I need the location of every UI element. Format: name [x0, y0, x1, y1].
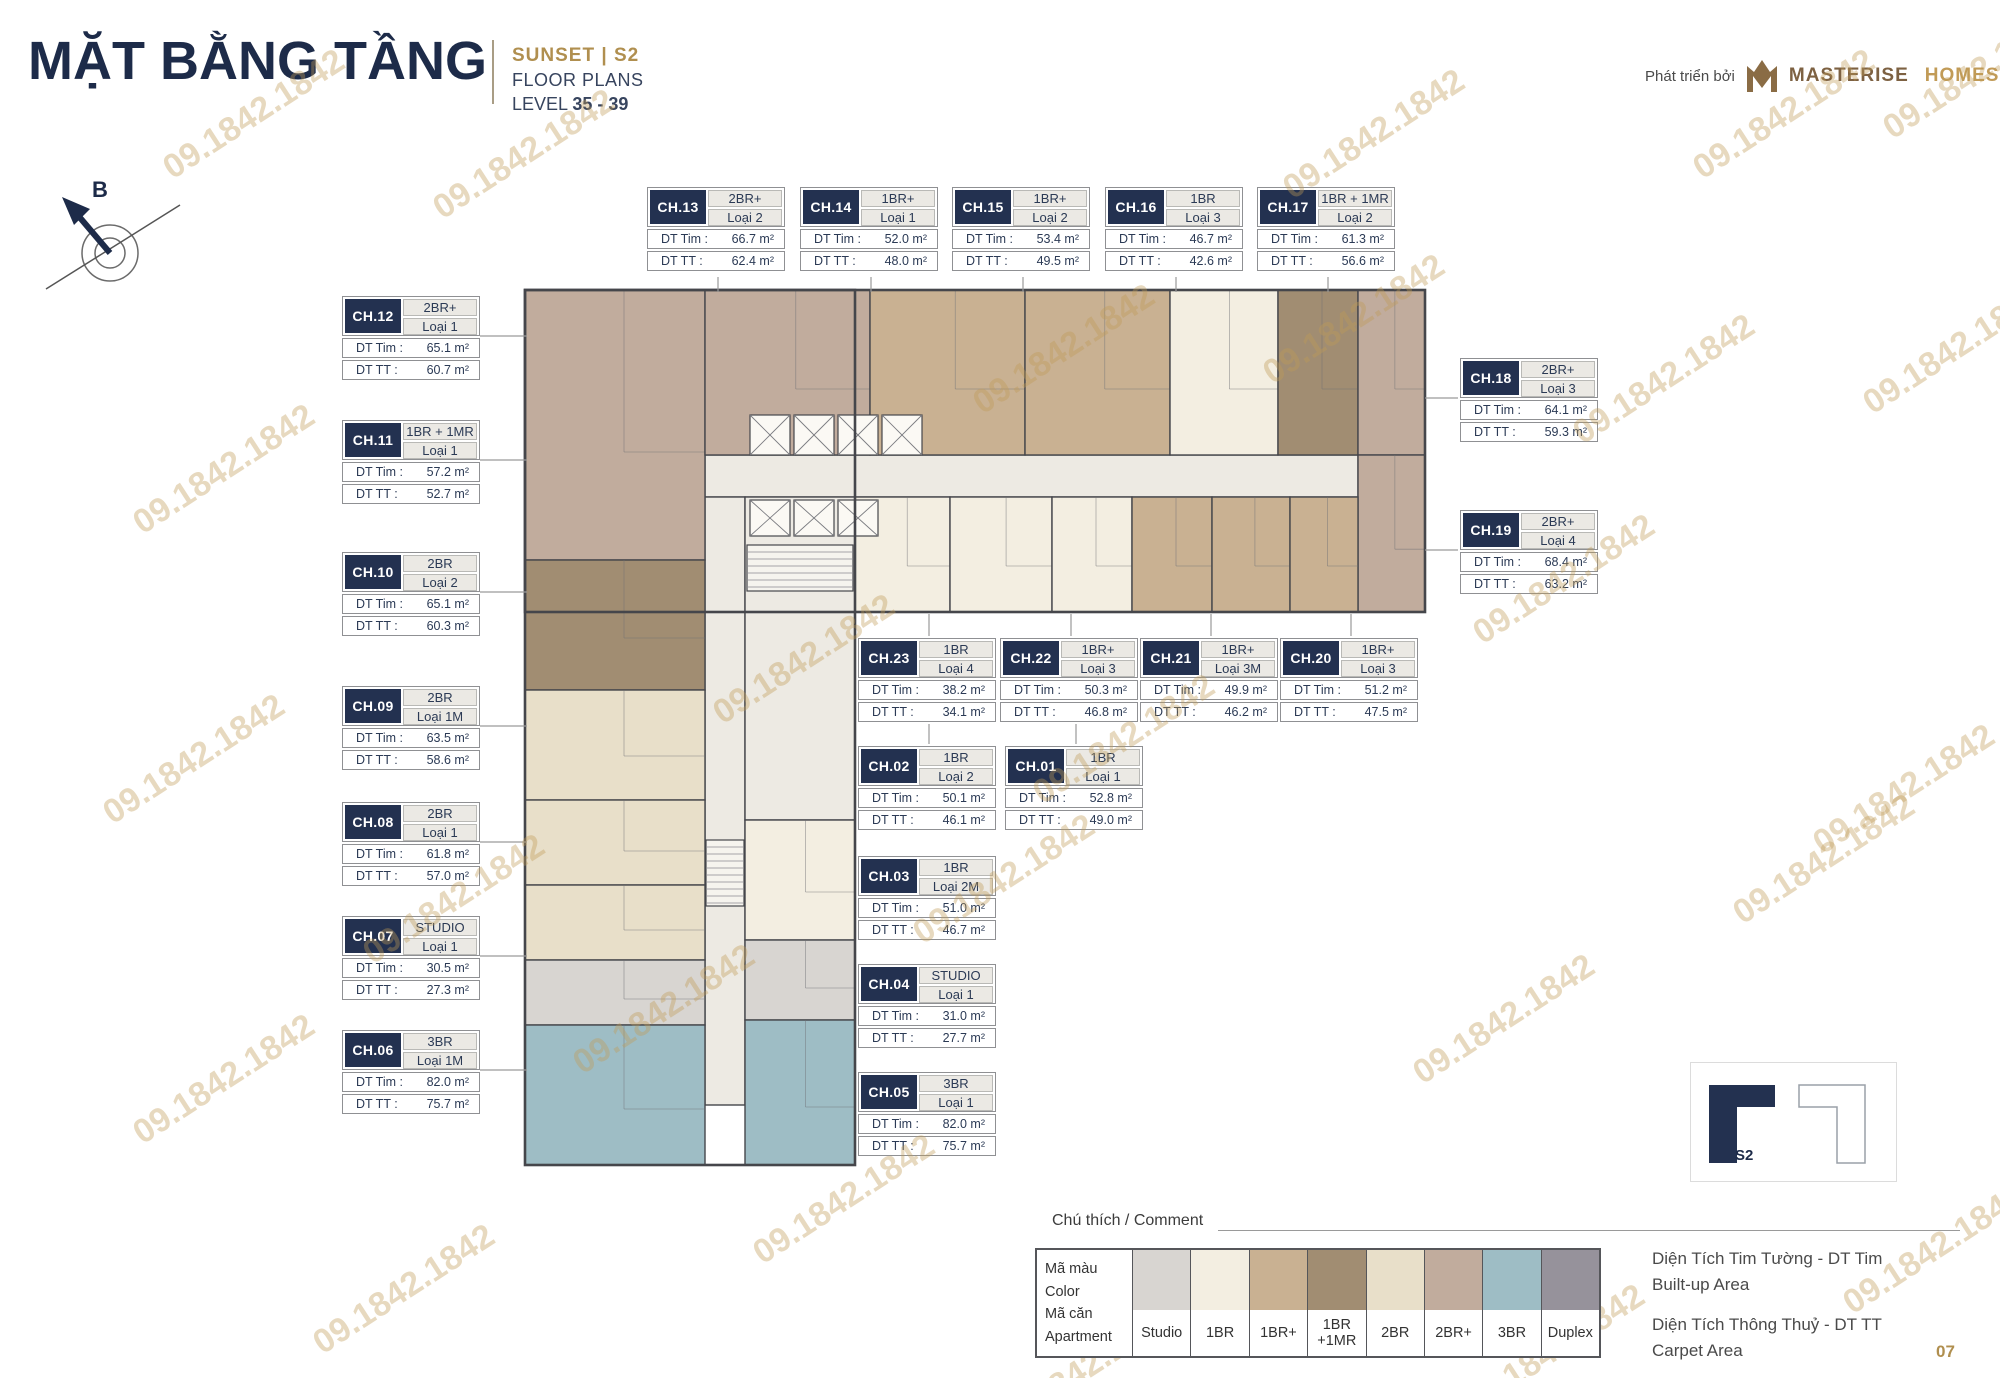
dt-tim-label: DT Tim :: [1019, 791, 1066, 805]
legend-item-label: 1BR +1MR: [1308, 1310, 1365, 1356]
unit-code: CH.22: [1003, 641, 1059, 675]
unit-dt-tim-row: DT Tim : 64.1 m²: [1460, 400, 1598, 420]
unit-dt-tt-row: DT TT : 52.7 m²: [342, 484, 480, 504]
unit-variant: Loại 4: [919, 660, 993, 677]
unit-callout-header: CH.14 1BR+ Loại 1: [800, 187, 938, 227]
unit-dt-tt-row: DT TT : 46.1 m²: [858, 810, 996, 830]
unit-callout-header: CH.10 2BR Loại 2: [342, 552, 480, 592]
unit-type: 2BR+: [708, 190, 782, 207]
legend-title-rule: [1218, 1230, 1960, 1231]
unit-callout-CH.13: CH.13 2BR+ Loại 2 DT Tim : 66.7 m² DT TT…: [647, 187, 785, 271]
note-built-up: Diện Tích Tim Tường - DT Tim Built-up Ar…: [1652, 1246, 1882, 1298]
unit-dt-tim-row: DT Tim : 46.7 m²: [1105, 229, 1243, 249]
unit-type: 1BR+: [861, 190, 935, 207]
dt-tt-value: 49.5 m²: [1037, 254, 1079, 268]
unit-callout-header: CH.07 STUDIO Loại 1: [342, 916, 480, 956]
unit-type: 1BR: [1166, 190, 1240, 207]
unit-callout-header: CH.09 2BR Loại 1M: [342, 686, 480, 726]
unit-variant: Loại 1: [403, 318, 477, 335]
legend-apartment-label-vi: Mã căn: [1045, 1306, 1124, 1322]
unit-callout-header: CH.01 1BR Loại 1: [1005, 746, 1143, 786]
legend-item-label: 3BR: [1483, 1310, 1540, 1356]
key-plan-inset: S2: [1690, 1062, 1897, 1182]
dt-tim-value: 50.1 m²: [943, 791, 985, 805]
dt-tt-value: 52.7 m²: [427, 487, 469, 501]
unit-variant: Loại 4: [1521, 532, 1595, 549]
unit-callout-CH.17: CH.17 1BR + 1MR Loại 2 DT Tim : 61.3 m² …: [1257, 187, 1395, 271]
unit-code: CH.04: [861, 967, 917, 1001]
dt-tim-value: 65.1 m²: [427, 341, 469, 355]
unit-type: STUDIO: [919, 967, 993, 984]
legend-color-swatch: [1367, 1250, 1424, 1310]
legend-apartment-label-en: Apartment: [1045, 1329, 1124, 1345]
dt-tim-label: DT Tim :: [966, 232, 1013, 246]
unit-dt-tim-row: DT Tim : 30.5 m²: [342, 958, 480, 978]
dt-tim-label: DT Tim :: [356, 1075, 403, 1089]
dt-tim-label: DT Tim :: [872, 1009, 919, 1023]
unit-callout-CH.19: CH.19 2BR+ Loại 4 DT Tim : 68.4 m² DT TT…: [1460, 510, 1598, 594]
unit-callout-CH.08: CH.08 2BR Loại 1 DT Tim : 61.8 m² DT TT …: [342, 802, 480, 886]
unit-type: 1BR: [919, 859, 993, 876]
unit-variant: Loại 2: [708, 209, 782, 226]
unit-code: CH.16: [1108, 190, 1164, 224]
note-carpet-en: Carpet Area: [1652, 1338, 1882, 1364]
unit-variant: Loại 2: [1318, 209, 1392, 226]
unit-code: CH.12: [345, 299, 401, 333]
unit-dt-tim-row: DT Tim : 49.9 m²: [1140, 680, 1278, 700]
area-notes: Diện Tích Tim Tường - DT Tim Built-up Ar…: [1652, 1246, 1882, 1378]
unit-code: CH.14: [803, 190, 859, 224]
legend-color-swatch: [1250, 1250, 1307, 1310]
unit-variant: Loại 1: [403, 442, 477, 459]
legend-color-label-vi: Mã màu: [1045, 1261, 1124, 1277]
dt-tt-value: 63.2 m²: [1545, 577, 1587, 591]
unit-type: 1BR: [919, 749, 993, 766]
unit-callout-header: CH.22 1BR+ Loại 3: [1000, 638, 1138, 678]
legend-item-3br: 3BR: [1483, 1250, 1541, 1356]
unit-callout-CH.23: CH.23 1BR Loại 4 DT Tim : 38.2 m² DT TT …: [858, 638, 996, 722]
unit-type: 1BR+: [1061, 641, 1135, 658]
unit-callout-CH.03: CH.03 1BR Loại 2M DT Tim : 51.0 m² DT TT…: [858, 856, 996, 940]
unit-dt-tt-row: DT TT : 75.7 m²: [858, 1136, 996, 1156]
unit-dt-tim-row: DT Tim : 66.7 m²: [647, 229, 785, 249]
unit-code: CH.18: [1463, 361, 1519, 395]
unit-variant: Loại 1: [403, 824, 477, 841]
unit-variant: Loại 2M: [919, 878, 993, 895]
dt-tt-label: DT TT :: [872, 813, 914, 827]
unit-callout-header: CH.16 1BR Loại 3: [1105, 187, 1243, 227]
unit-type: 2BR+: [1521, 513, 1595, 530]
unit-dt-tt-row: DT TT : 58.6 m²: [342, 750, 480, 770]
dt-tim-value: 65.1 m²: [427, 597, 469, 611]
dt-tim-label: DT Tim :: [356, 597, 403, 611]
unit-code: CH.17: [1260, 190, 1316, 224]
unit-dt-tt-row: DT TT : 46.8 m²: [1000, 702, 1138, 722]
dt-tt-label: DT TT :: [1474, 425, 1516, 439]
unit-callout-header: CH.04 STUDIO Loại 1: [858, 964, 996, 1004]
unit-code: CH.03: [861, 859, 917, 893]
dt-tt-label: DT TT :: [356, 487, 398, 501]
dt-tim-value: 63.5 m²: [427, 731, 469, 745]
unit-callout-header: CH.11 1BR + 1MR Loại 1: [342, 420, 480, 460]
unit-callout-CH.05: CH.05 3BR Loại 1 DT Tim : 82.0 m² DT TT …: [858, 1072, 996, 1156]
unit-type-block: 2BR Loại 1: [403, 805, 477, 839]
unit-callout-CH.09: CH.09 2BR Loại 1M DT Tim : 63.5 m² DT TT…: [342, 686, 480, 770]
legend-item-2br: 2BR: [1367, 1250, 1425, 1356]
unit-code: CH.07: [345, 919, 401, 953]
dt-tt-value: 60.3 m²: [427, 619, 469, 633]
dt-tim-label: DT Tim :: [1294, 683, 1341, 697]
unit-type: 2BR: [403, 805, 477, 822]
dt-tim-label: DT Tim :: [356, 731, 403, 745]
dt-tim-label: DT Tim :: [1154, 683, 1201, 697]
dt-tim-value: 50.3 m²: [1085, 683, 1127, 697]
unit-code: CH.13: [650, 190, 706, 224]
unit-callout-header: CH.17 1BR + 1MR Loại 2: [1257, 187, 1395, 227]
dt-tim-label: DT Tim :: [814, 232, 861, 246]
unit-callout-CH.22: CH.22 1BR+ Loại 3 DT Tim : 50.3 m² DT TT…: [1000, 638, 1138, 722]
unit-dt-tim-row: DT Tim : 50.1 m²: [858, 788, 996, 808]
legend-item-label: 1BR+: [1250, 1310, 1307, 1356]
unit-type-block: 1BR Loại 1: [1066, 749, 1140, 783]
dt-tt-value: 58.6 m²: [427, 753, 469, 767]
dt-tt-label: DT TT :: [1014, 705, 1056, 719]
dt-tim-value: 61.8 m²: [427, 847, 469, 861]
unit-callout-header: CH.03 1BR Loại 2M: [858, 856, 996, 896]
unit-type: STUDIO: [403, 919, 477, 936]
unit-code: CH.19: [1463, 513, 1519, 547]
note-built-up-en: Built-up Area: [1652, 1272, 1882, 1298]
legend-item-1br+1mr: 1BR +1MR: [1308, 1250, 1366, 1356]
unit-dt-tt-row: DT TT : 59.3 m²: [1460, 422, 1598, 442]
dt-tt-value: 59.3 m²: [1545, 425, 1587, 439]
dt-tim-value: 68.4 m²: [1545, 555, 1587, 569]
dt-tim-label: DT Tim :: [1271, 232, 1318, 246]
unit-dt-tim-row: DT Tim : 63.5 m²: [342, 728, 480, 748]
unit-callout-header: CH.21 1BR+ Loại 3M: [1140, 638, 1278, 678]
unit-type-block: 1BR Loại 2: [919, 749, 993, 783]
unit-variant: Loại 1M: [403, 708, 477, 725]
dt-tim-label: DT Tim :: [1474, 403, 1521, 417]
note-carpet-vi: Diện Tích Thông Thuỷ - DT TT: [1652, 1312, 1882, 1338]
unit-dt-tim-row: DT Tim : 31.0 m²: [858, 1006, 996, 1026]
dt-tim-label: DT Tim :: [356, 961, 403, 975]
unit-dt-tt-row: DT TT : 60.7 m²: [342, 360, 480, 380]
unit-callout-CH.21: CH.21 1BR+ Loại 3M DT Tim : 49.9 m² DT T…: [1140, 638, 1278, 722]
unit-callout-header: CH.05 3BR Loại 1: [858, 1072, 996, 1112]
unit-dt-tim-row: DT Tim : 68.4 m²: [1460, 552, 1598, 572]
legend-color-swatch: [1483, 1250, 1540, 1310]
dt-tim-value: 30.5 m²: [427, 961, 469, 975]
unit-callout-CH.20: CH.20 1BR+ Loại 3 DT Tim : 51.2 m² DT TT…: [1280, 638, 1418, 722]
dt-tt-value: 34.1 m²: [943, 705, 985, 719]
legend-color-label-en: Color: [1045, 1284, 1124, 1300]
unit-type: 1BR: [1066, 749, 1140, 766]
dt-tt-value: 27.7 m²: [943, 1031, 985, 1045]
legend-item-label: 1BR: [1191, 1310, 1248, 1356]
unit-callout-CH.15: CH.15 1BR+ Loại 2 DT Tim : 53.4 m² DT TT…: [952, 187, 1090, 271]
unit-type: 1BR+: [1201, 641, 1275, 658]
dt-tim-label: DT Tim :: [661, 232, 708, 246]
unit-dt-tt-row: DT TT : 63.2 m²: [1460, 574, 1598, 594]
unit-type: 1BR+: [1341, 641, 1415, 658]
unit-dt-tim-row: DT Tim : 65.1 m²: [342, 594, 480, 614]
dt-tt-value: 27.3 m²: [427, 983, 469, 997]
dt-tt-label: DT TT :: [1019, 813, 1061, 827]
unit-type-block: 2BR+ Loại 1: [403, 299, 477, 333]
unit-callout-CH.10: CH.10 2BR Loại 2 DT Tim : 65.1 m² DT TT …: [342, 552, 480, 636]
unit-type-block: 2BR Loại 1M: [403, 689, 477, 723]
unit-dt-tim-row: DT Tim : 52.8 m²: [1005, 788, 1143, 808]
unit-variant: Loại 2: [1013, 209, 1087, 226]
unit-type-block: 1BR+ Loại 2: [1013, 190, 1087, 224]
legend-item-1br+: 1BR+: [1250, 1250, 1308, 1356]
unit-variant: Loại 1: [861, 209, 935, 226]
dt-tt-value: 60.7 m²: [427, 363, 469, 377]
unit-dt-tt-row: DT TT : 34.1 m²: [858, 702, 996, 722]
unit-code: CH.09: [345, 689, 401, 723]
unit-dt-tt-row: DT TT : 75.7 m²: [342, 1094, 480, 1114]
unit-dt-tt-row: DT TT : 62.4 m²: [647, 251, 785, 271]
dt-tt-label: DT TT :: [872, 923, 914, 937]
legend-item-label: Duplex: [1542, 1310, 1599, 1356]
dt-tim-label: DT Tim :: [1119, 232, 1166, 246]
unit-variant: Loại 1: [919, 986, 993, 1003]
unit-type: 1BR + 1MR: [1318, 190, 1392, 207]
dt-tim-value: 38.2 m²: [943, 683, 985, 697]
unit-callout-CH.14: CH.14 1BR+ Loại 1 DT Tim : 52.0 m² DT TT…: [800, 187, 938, 271]
dt-tim-label: DT Tim :: [1474, 555, 1521, 569]
dt-tim-value: 49.9 m²: [1225, 683, 1267, 697]
unit-callout-header: CH.02 1BR Loại 2: [858, 746, 996, 786]
dt-tim-value: 46.7 m²: [1190, 232, 1232, 246]
dt-tt-value: 48.0 m²: [885, 254, 927, 268]
dt-tim-value: 61.3 m²: [1342, 232, 1384, 246]
dt-tim-value: 57.2 m²: [427, 465, 469, 479]
unit-callout-header: CH.06 3BR Loại 1M: [342, 1030, 480, 1070]
unit-callout-header: CH.23 1BR Loại 4: [858, 638, 996, 678]
legend-title: Chú thích / Comment: [1052, 1212, 1203, 1230]
dt-tim-value: 51.0 m²: [943, 901, 985, 915]
dt-tt-label: DT TT :: [1474, 577, 1516, 591]
dt-tt-label: DT TT :: [872, 1031, 914, 1045]
unit-callout-CH.18: CH.18 2BR+ Loại 3 DT Tim : 64.1 m² DT TT…: [1460, 358, 1598, 442]
unit-variant: Loại 1M: [403, 1052, 477, 1069]
dt-tt-label: DT TT :: [356, 869, 398, 883]
dt-tt-value: 49.0 m²: [1090, 813, 1132, 827]
unit-code: CH.21: [1143, 641, 1199, 675]
unit-dt-tim-row: DT Tim : 61.8 m²: [342, 844, 480, 864]
dt-tt-label: DT TT :: [1154, 705, 1196, 719]
unit-callout-header: CH.08 2BR Loại 1: [342, 802, 480, 842]
dt-tt-label: DT TT :: [814, 254, 856, 268]
unit-callout-header: CH.19 2BR+ Loại 4: [1460, 510, 1598, 550]
unit-type: 2BR+: [403, 299, 477, 316]
dt-tim-label: DT Tim :: [872, 901, 919, 915]
unit-type-block: 1BR+ Loại 1: [861, 190, 935, 224]
unit-type-block: STUDIO Loại 1: [919, 967, 993, 1001]
unit-dt-tim-row: DT Tim : 50.3 m²: [1000, 680, 1138, 700]
dt-tim-value: 66.7 m²: [732, 232, 774, 246]
unit-callout-header: CH.20 1BR+ Loại 3: [1280, 638, 1418, 678]
unit-type-block: 2BR Loại 2: [403, 555, 477, 589]
dt-tim-value: 64.1 m²: [1545, 403, 1587, 417]
unit-type-block: 1BR + 1MR Loại 1: [403, 423, 477, 457]
dt-tim-label: DT Tim :: [872, 1117, 919, 1131]
unit-dt-tim-row: DT Tim : 65.1 m²: [342, 338, 480, 358]
legend-item-1br: 1BR: [1191, 1250, 1249, 1356]
unit-dt-tt-row: DT TT : 46.2 m²: [1140, 702, 1278, 722]
unit-dt-tim-row: DT Tim : 38.2 m²: [858, 680, 996, 700]
unit-dt-tt-row: DT TT : 48.0 m²: [800, 251, 938, 271]
unit-code: CH.01: [1008, 749, 1064, 783]
unit-type-block: 1BR Loại 4: [919, 641, 993, 675]
dt-tt-label: DT TT :: [1271, 254, 1313, 268]
unit-type-block: 1BR + 1MR Loại 2: [1318, 190, 1392, 224]
legend-item-label: Studio: [1133, 1310, 1190, 1356]
dt-tim-value: 82.0 m²: [427, 1075, 469, 1089]
dt-tt-label: DT TT :: [356, 753, 398, 767]
dt-tt-label: DT TT :: [966, 254, 1008, 268]
unit-type-block: 2BR+ Loại 4: [1521, 513, 1595, 547]
unit-type-block: 2BR+ Loại 2: [708, 190, 782, 224]
unit-type-block: 1BR+ Loại 3: [1061, 641, 1135, 675]
page-number: 07: [1936, 1342, 1955, 1362]
unit-type: 2BR: [403, 555, 477, 572]
dt-tt-value: 75.7 m²: [427, 1097, 469, 1111]
unit-type: 1BR + 1MR: [403, 423, 477, 440]
unit-code: CH.20: [1283, 641, 1339, 675]
unit-type-block: 1BR Loại 3: [1166, 190, 1240, 224]
legend-row-headers: Mã màu Color Mã căn Apartment: [1037, 1250, 1133, 1356]
unit-type: 1BR: [919, 641, 993, 658]
unit-callout-CH.07: CH.07 STUDIO Loại 1 DT Tim : 30.5 m² DT …: [342, 916, 480, 1000]
dt-tt-label: DT TT :: [1294, 705, 1336, 719]
dt-tim-value: 52.8 m²: [1090, 791, 1132, 805]
dt-tt-value: 47.5 m²: [1365, 705, 1407, 719]
unit-variant: Loại 3: [1061, 660, 1135, 677]
unit-type: 2BR+: [1521, 361, 1595, 378]
unit-variant: Loại 1: [919, 1094, 993, 1111]
dt-tim-value: 53.4 m²: [1037, 232, 1079, 246]
dt-tt-label: DT TT :: [356, 983, 398, 997]
unit-callout-CH.16: CH.16 1BR Loại 3 DT Tim : 46.7 m² DT TT …: [1105, 187, 1243, 271]
unit-variant: Loại 1: [403, 938, 477, 955]
unit-dt-tim-row: DT Tim : 82.0 m²: [342, 1072, 480, 1092]
unit-dt-tim-row: DT Tim : 61.3 m²: [1257, 229, 1395, 249]
dt-tt-label: DT TT :: [872, 1139, 914, 1153]
dt-tim-label: DT Tim :: [1014, 683, 1061, 697]
unit-dt-tim-row: DT Tim : 53.4 m²: [952, 229, 1090, 249]
dt-tim-value: 82.0 m²: [943, 1117, 985, 1131]
unit-type-block: 2BR+ Loại 3: [1521, 361, 1595, 395]
unit-dt-tt-row: DT TT : 46.7 m²: [858, 920, 996, 940]
unit-dt-tt-row: DT TT : 56.6 m²: [1257, 251, 1395, 271]
dt-tt-label: DT TT :: [661, 254, 703, 268]
dt-tim-label: DT Tim :: [356, 465, 403, 479]
unit-code: CH.06: [345, 1033, 401, 1067]
dt-tim-label: DT Tim :: [872, 683, 919, 697]
unit-type: 1BR+: [1013, 190, 1087, 207]
dt-tt-label: DT TT :: [356, 619, 398, 633]
unit-type-block: 1BR+ Loại 3M: [1201, 641, 1275, 675]
legend-item-label: 2BR: [1367, 1310, 1424, 1356]
unit-dt-tt-row: DT TT : 57.0 m²: [342, 866, 480, 886]
unit-code: CH.08: [345, 805, 401, 839]
dt-tt-label: DT TT :: [1119, 254, 1161, 268]
legend-color-swatch: [1542, 1250, 1599, 1310]
unit-code: CH.23: [861, 641, 917, 675]
unit-callout-CH.11: CH.11 1BR + 1MR Loại 1 DT Tim : 57.2 m² …: [342, 420, 480, 504]
unit-variant: Loại 1: [1066, 768, 1140, 785]
unit-callout-CH.02: CH.02 1BR Loại 2 DT Tim : 50.1 m² DT TT …: [858, 746, 996, 830]
unit-dt-tim-row: DT Tim : 57.2 m²: [342, 462, 480, 482]
unit-dt-tt-row: DT TT : 49.0 m²: [1005, 810, 1143, 830]
unit-type-block: 3BR Loại 1: [919, 1075, 993, 1109]
unit-dt-tt-row: DT TT : 60.3 m²: [342, 616, 480, 636]
unit-type-block: 3BR Loại 1M: [403, 1033, 477, 1067]
unit-type-block: 1BR+ Loại 3: [1341, 641, 1415, 675]
unit-callout-CH.01: CH.01 1BR Loại 1 DT Tim : 52.8 m² DT TT …: [1005, 746, 1143, 830]
unit-code: CH.05: [861, 1075, 917, 1109]
unit-callout-CH.12: CH.12 2BR+ Loại 1 DT Tim : 65.1 m² DT TT…: [342, 296, 480, 380]
legend-item-studio: Studio: [1133, 1250, 1191, 1356]
unit-type: 3BR: [403, 1033, 477, 1050]
dt-tt-value: 62.4 m²: [732, 254, 774, 268]
unit-variant: Loại 2: [403, 574, 477, 591]
legend-table: Mã màu Color Mã căn Apartment Studio 1BR…: [1035, 1248, 1601, 1358]
unit-dt-tt-row: DT TT : 42.6 m²: [1105, 251, 1243, 271]
dt-tt-value: 56.6 m²: [1342, 254, 1384, 268]
legend-color-swatch: [1425, 1250, 1482, 1310]
dt-tt-value: 75.7 m²: [943, 1139, 985, 1153]
unit-dt-tim-row: DT Tim : 52.0 m²: [800, 229, 938, 249]
unit-type-block: 1BR Loại 2M: [919, 859, 993, 893]
dt-tim-label: DT Tim :: [356, 341, 403, 355]
legend-color-swatch: [1191, 1250, 1248, 1310]
unit-code: CH.02: [861, 749, 917, 783]
unit-code: CH.10: [345, 555, 401, 589]
dt-tt-value: 46.1 m²: [943, 813, 985, 827]
dt-tim-label: DT Tim :: [872, 791, 919, 805]
dt-tt-label: DT TT :: [356, 363, 398, 377]
legend-item-label: 2BR+: [1425, 1310, 1482, 1356]
unit-variant: Loại 2: [919, 768, 993, 785]
floor-plan-page: MẶT BẰNG TẦNG SUNSET | S2 FLOOR PLANS LE…: [0, 0, 2000, 1378]
unit-type: 3BR: [919, 1075, 993, 1092]
unit-code: CH.11: [345, 423, 401, 457]
unit-callout-header: CH.15 1BR+ Loại 2: [952, 187, 1090, 227]
unit-variant: Loại 3: [1341, 660, 1415, 677]
legend-item-2br+: 2BR+: [1425, 1250, 1483, 1356]
legend-color-swatch: [1308, 1250, 1365, 1310]
key-plan-shapes: [1691, 1063, 1894, 1179]
unit-callout-CH.06: CH.06 3BR Loại 1M DT Tim : 82.0 m² DT TT…: [342, 1030, 480, 1114]
unit-dt-tt-row: DT TT : 49.5 m²: [952, 251, 1090, 271]
dt-tt-label: DT TT :: [872, 705, 914, 719]
dt-tt-value: 46.7 m²: [943, 923, 985, 937]
unit-callout-CH.04: CH.04 STUDIO Loại 1 DT Tim : 31.0 m² DT …: [858, 964, 996, 1048]
unit-dt-tim-row: DT Tim : 82.0 m²: [858, 1114, 996, 1134]
unit-callout-header: CH.13 2BR+ Loại 2: [647, 187, 785, 227]
dt-tt-value: 46.8 m²: [1085, 705, 1127, 719]
unit-dt-tim-row: DT Tim : 51.2 m²: [1280, 680, 1418, 700]
unit-variant: Loại 3M: [1201, 660, 1275, 677]
unit-callout-header: CH.12 2BR+ Loại 1: [342, 296, 480, 336]
legend-color-swatch: [1133, 1250, 1190, 1310]
unit-variant: Loại 3: [1521, 380, 1595, 397]
unit-dt-tt-row: DT TT : 27.7 m²: [858, 1028, 996, 1048]
